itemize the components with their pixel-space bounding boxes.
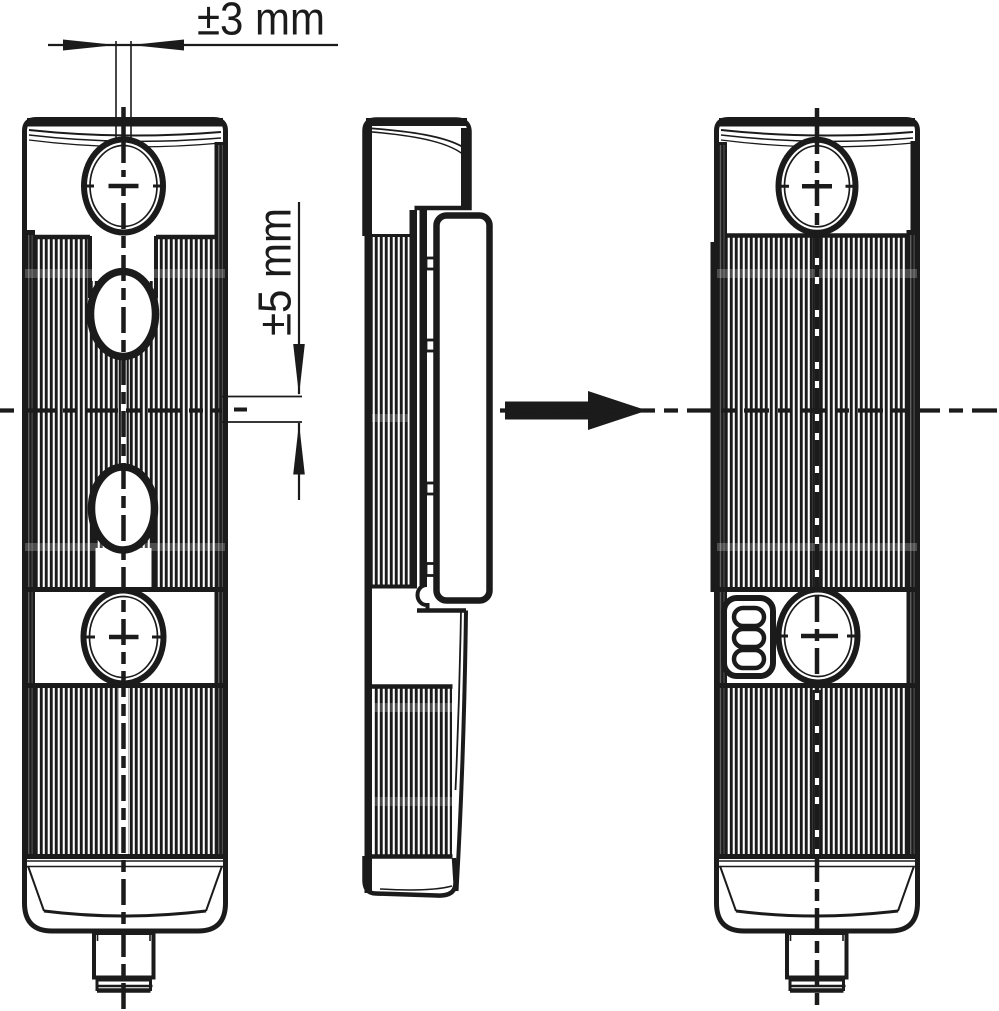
svg-text:±5 mm: ±5 mm <box>249 208 301 336</box>
svg-text:±3 mm: ±3 mm <box>197 0 325 45</box>
